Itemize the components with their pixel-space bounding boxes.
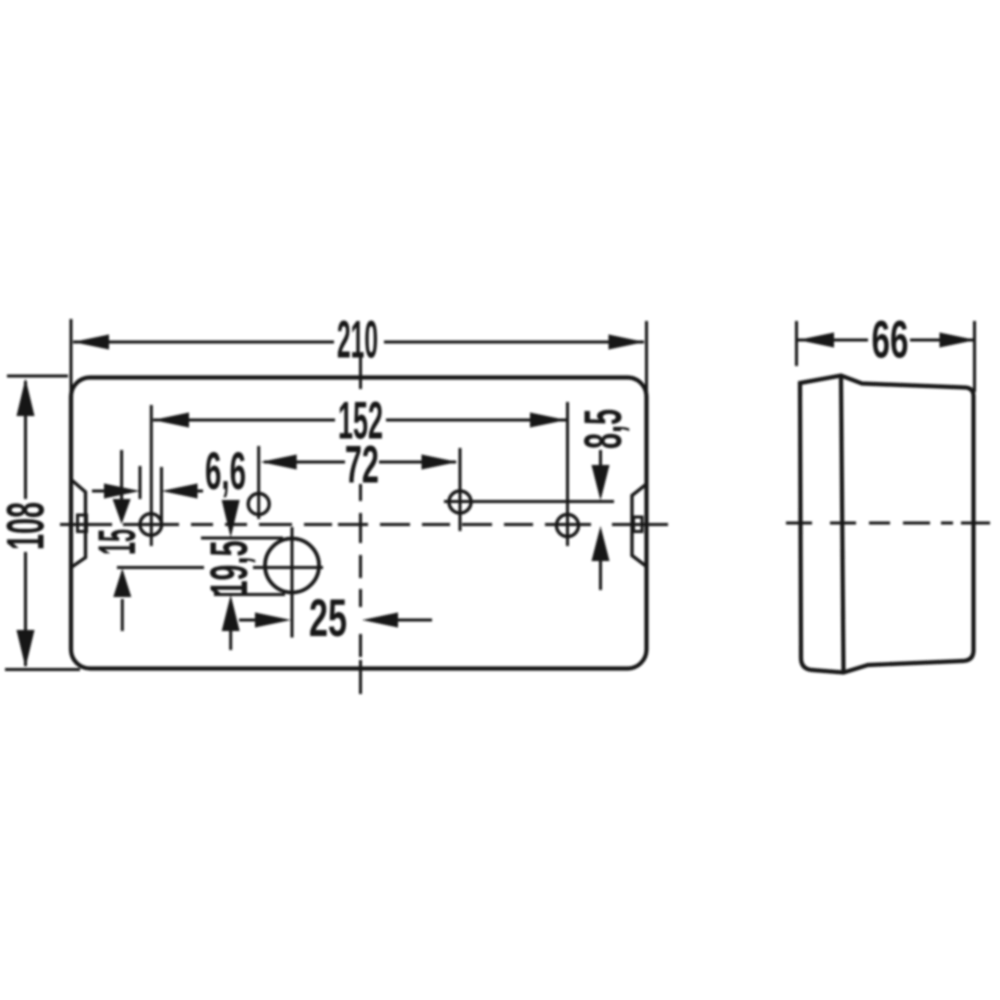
svg-text:72: 72 (345, 436, 379, 495)
svg-text:66: 66 (872, 311, 909, 370)
svg-text:8,5: 8,5 (574, 409, 633, 449)
svg-text:108: 108 (0, 502, 56, 550)
svg-text:25: 25 (309, 589, 347, 648)
svg-text:210: 210 (337, 311, 378, 370)
svg-text:19,5: 19,5 (200, 541, 259, 597)
svg-text:6,6: 6,6 (205, 442, 246, 501)
svg-text:15: 15 (88, 529, 147, 555)
